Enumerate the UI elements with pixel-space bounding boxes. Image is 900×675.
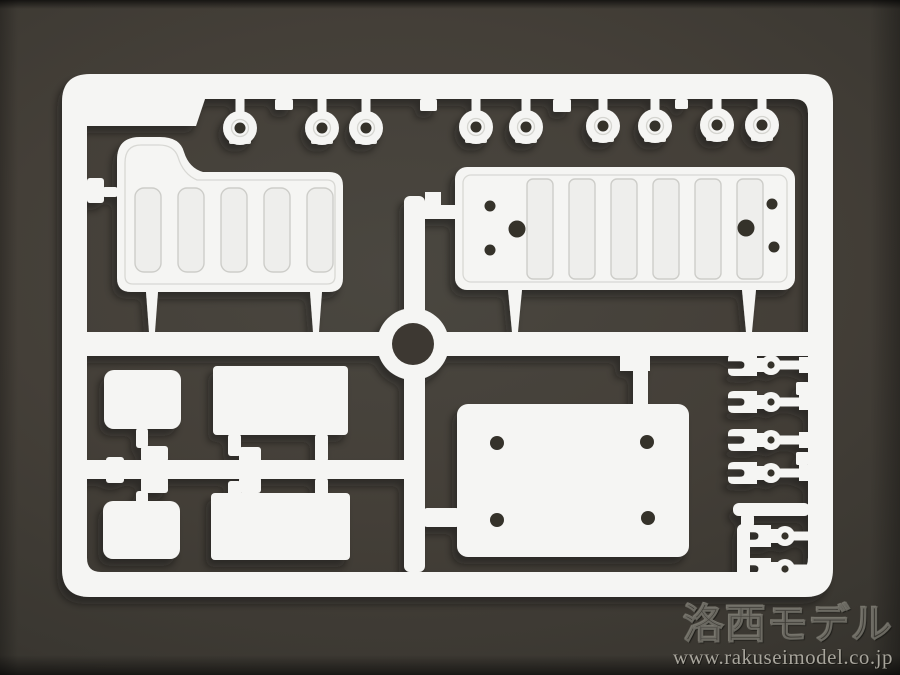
center-ring-bore: [392, 323, 434, 365]
fork-clip-part: [728, 429, 810, 451]
part-small-panel-a: [104, 370, 181, 429]
photo-stage: 洛西モデル www.rakuseimodel.co.jp: [0, 0, 900, 675]
fork-clip-part: [728, 354, 810, 376]
part-panel-d: [211, 493, 350, 560]
part-ribbed-panel-left: [117, 137, 343, 332]
sprue-photo: [0, 0, 900, 675]
part-panel-c: [213, 366, 348, 435]
grommet-parts: [223, 95, 779, 145]
part-flat-plate-bottom: [424, 356, 689, 557]
fork-clip-part: [728, 462, 810, 484]
part-ribbed-plate-right: [425, 167, 795, 332]
part-small-panel-b: [103, 501, 180, 559]
frame-label-tab: [87, 99, 205, 126]
